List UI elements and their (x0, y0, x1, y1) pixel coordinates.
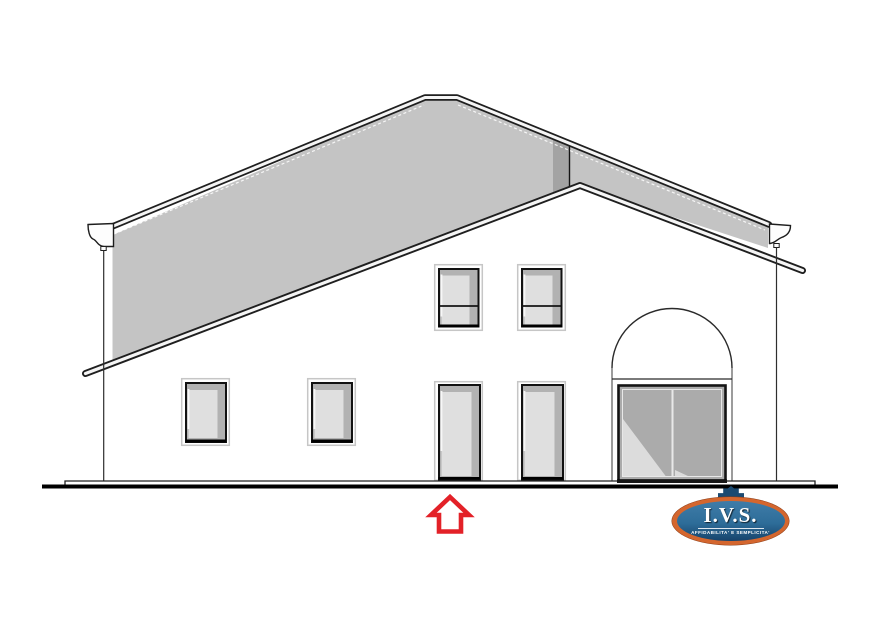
window-upper-right (518, 265, 566, 331)
window-ground-right (308, 379, 356, 446)
logo-field: I.V.S. AFFIDABILITA' E SEMPLICITA' (677, 501, 785, 541)
right-eave-bracket (770, 224, 791, 244)
logo-tagline: AFFIDABILITA' E SEMPLICITA' (677, 530, 785, 535)
drawing-caption: PORZIONE DI BIFAMILIARE PROSPETTO NORD -… (0, 546, 878, 628)
ivs-logo: I.V.S. AFFIDABILITA' E SEMPLICITA' (672, 485, 790, 547)
logo-acronym: I.V.S. (677, 504, 785, 527)
logo-divider (698, 528, 764, 529)
left-eave-bracket (88, 224, 114, 247)
logo-oval: I.V.S. AFFIDABILITA' E SEMPLICITA' (672, 497, 789, 545)
up-arrow-icon (431, 497, 469, 532)
window-upper-left (435, 265, 483, 331)
window-ground-left (182, 379, 230, 446)
french-window-right (518, 382, 566, 481)
left-downspout-neck (101, 247, 106, 251)
right-downspout-neck (774, 244, 779, 248)
french-window-left (435, 382, 483, 481)
page: PORZIONE DI BIFAMILIARE PROSPETTO NORD -… (0, 0, 878, 628)
arched-doorway (612, 309, 732, 483)
